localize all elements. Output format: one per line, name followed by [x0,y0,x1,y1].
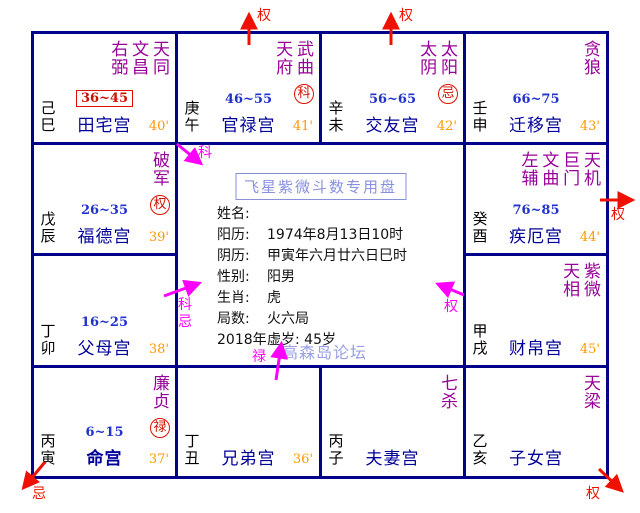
info-value-lunar: 甲寅年六月廿六日巳时 [267,245,407,265]
info-label-gender: 性别: [217,266,267,286]
info-label-juShu: 局数: [217,308,267,328]
palace-name: 子女宫 [509,444,563,469]
palace-name: 疾厄宫 [509,222,563,247]
palace-stars: 天府 武曲 [272,40,311,76]
palace-jiaoyou: 太阴 太阳 忌 辛未 56~65 交友宫 42' [322,34,463,142]
palace-fuqi: 七杀 丙子 夫妻宫 [322,368,463,475]
info-label-name: 姓名: [217,203,267,223]
minute-mark: 42' [437,119,457,134]
star-taiyang: 太阳 [437,40,455,76]
ji-label-bottom-left: 忌 [32,487,46,501]
palace-name: 官禄宫 [222,111,276,136]
palace-stars: 七杀 [437,374,455,410]
minute-mark: 45' [580,342,600,357]
palace-stars: 贪狼 [580,40,598,76]
quan-label-top-1: 权 [257,9,271,23]
quan-label-right: 权 [611,208,625,222]
palace-fumu: 丁卯 16~25 父母宫 38' [34,256,175,365]
lu-label-bottom: 禄 [252,350,266,364]
palace-fude: 破军 权 戊辰 26~35 福德宫 39' [34,145,175,253]
decade-range: 56~65 [369,92,416,107]
minute-mark: 41' [293,119,313,134]
quan-label-top-2: 权 [399,9,413,23]
info-value-solar: 1974年8月13日10时 [267,224,403,244]
minute-mark: 44' [580,230,600,245]
info-label-zodiac: 生肖: [217,287,267,307]
decade-range: 76~85 [512,203,559,218]
palace-name: 交友宫 [366,111,420,136]
forum-watermark: 高森岛论坛 [282,339,367,363]
star-lianzhen: 廉贞 [149,374,167,410]
star-wenqu: 文曲 [538,151,556,187]
info-label-solar: 阳历: [217,224,267,244]
palace-stars: 破军 [149,151,167,187]
palace-stars: 廉贞 [149,374,167,410]
palace-guanlu: 天府 武曲 科 庚午 46~55 官禄宫 41' [178,34,319,142]
quan-label-bottom-right: 权 [586,487,600,501]
palace-tianzhai: 右弼 文昌 天同 己巳 36~45 田宅宫 40' [34,34,175,142]
quan-label-center-right: 权 [444,300,458,314]
ji-label-left: 忌 [178,315,192,329]
info-label-lunar: 阴历: [217,245,267,265]
palace-stars: 太阴 太阳 [416,40,455,76]
star-ziwei: 紫微 [580,262,598,298]
decade-range: 26~35 [81,203,128,218]
star-tanlang: 贪狼 [580,40,598,76]
palace-name: 财帛宫 [509,334,563,359]
info-value-gender: 阳男 [267,266,295,286]
star-youbi: 右弼 [107,40,125,76]
minute-mark: 38' [149,342,169,357]
star-pojun: 破军 [149,151,167,187]
palace-name: 兄弟宫 [222,444,276,469]
info-value-zodiac: 虎 [267,287,281,307]
minute-mark: 37' [149,452,169,467]
palace-caibo: 天相 紫微 甲戌 财帛宫 45' [466,256,606,365]
minute-mark: 40' [149,119,169,134]
info-value-jushu: 火六局 [267,308,309,328]
center-info-panel: 飞星紫微斗数专用盘 姓名: 阳历:1974年8月13日10时 阴历:甲寅年六月廿… [178,145,463,365]
ziwei-chart: 右弼 文昌 天同 己巳 36~45 田宅宫 40' 天府 武曲 科 庚午 46~… [0,0,640,513]
minute-mark: 39' [149,230,169,245]
star-taiyin: 太阴 [416,40,434,76]
decade-range: 66~75 [512,92,559,107]
palace-stars: 天梁 [580,374,598,410]
palace-zinv: 天梁 乙亥 子女宫 [466,368,606,475]
decade-range: 16~25 [81,315,128,330]
ke-label-left: 科 [178,298,192,312]
star-tianxiang: 天相 [559,262,577,298]
minute-mark: 43' [580,119,600,134]
palace-name: 夫妻宫 [366,444,420,469]
palace-name: 父母宫 [78,334,132,359]
palace-name: 福德宫 [78,222,132,247]
palace-jie: 左辅 文曲 巨门 天机 癸酉 76~85 疾厄宫 44' [466,145,606,253]
decade-range-highlighted: 36~45 [76,90,133,107]
star-zuofu: 左辅 [518,151,536,187]
star-tianji: 天机 [580,151,598,187]
palace-stars: 左辅 文曲 巨门 天机 [518,151,598,187]
palace-name: 命宫 [87,444,123,469]
star-tiantong: 天同 [149,40,167,76]
star-qisha: 七杀 [437,374,455,410]
star-wenchang: 文昌 [128,40,146,76]
palace-stars: 右弼 文昌 天同 [107,40,167,76]
palace-xiongdi: 丁丑 兄弟宫 36' [178,368,319,475]
palace-name: 迁移宫 [509,111,563,136]
minute-mark: 36' [293,452,313,467]
decade-range: 46~55 [225,92,272,107]
star-wuqu: 武曲 [293,40,311,76]
star-tianliang: 天梁 [580,374,598,410]
decade-range: 6~15 [85,425,123,440]
ke-label-center-topleft: 科 [198,146,212,160]
star-jumen: 巨门 [559,151,577,187]
info-label-year: 2018年 [217,329,267,349]
palace-name: 田宅宫 [78,111,132,136]
palace-qianyi: 贪狼 壬申 66~75 迁移宫 43' [466,34,606,142]
palace-stars: 天相 紫微 [559,262,598,298]
birth-info: 姓名: 阳历:1974年8月13日10时 阴历:甲寅年六月廿六日巳时 性别:阳男… [217,202,407,349]
chart-title: 飞星紫微斗数专用盘 [235,173,406,200]
palace-ming: 廉贞 禄 丙寅 6~15 命宫 37' [34,368,175,475]
star-tianfu: 天府 [272,40,290,76]
